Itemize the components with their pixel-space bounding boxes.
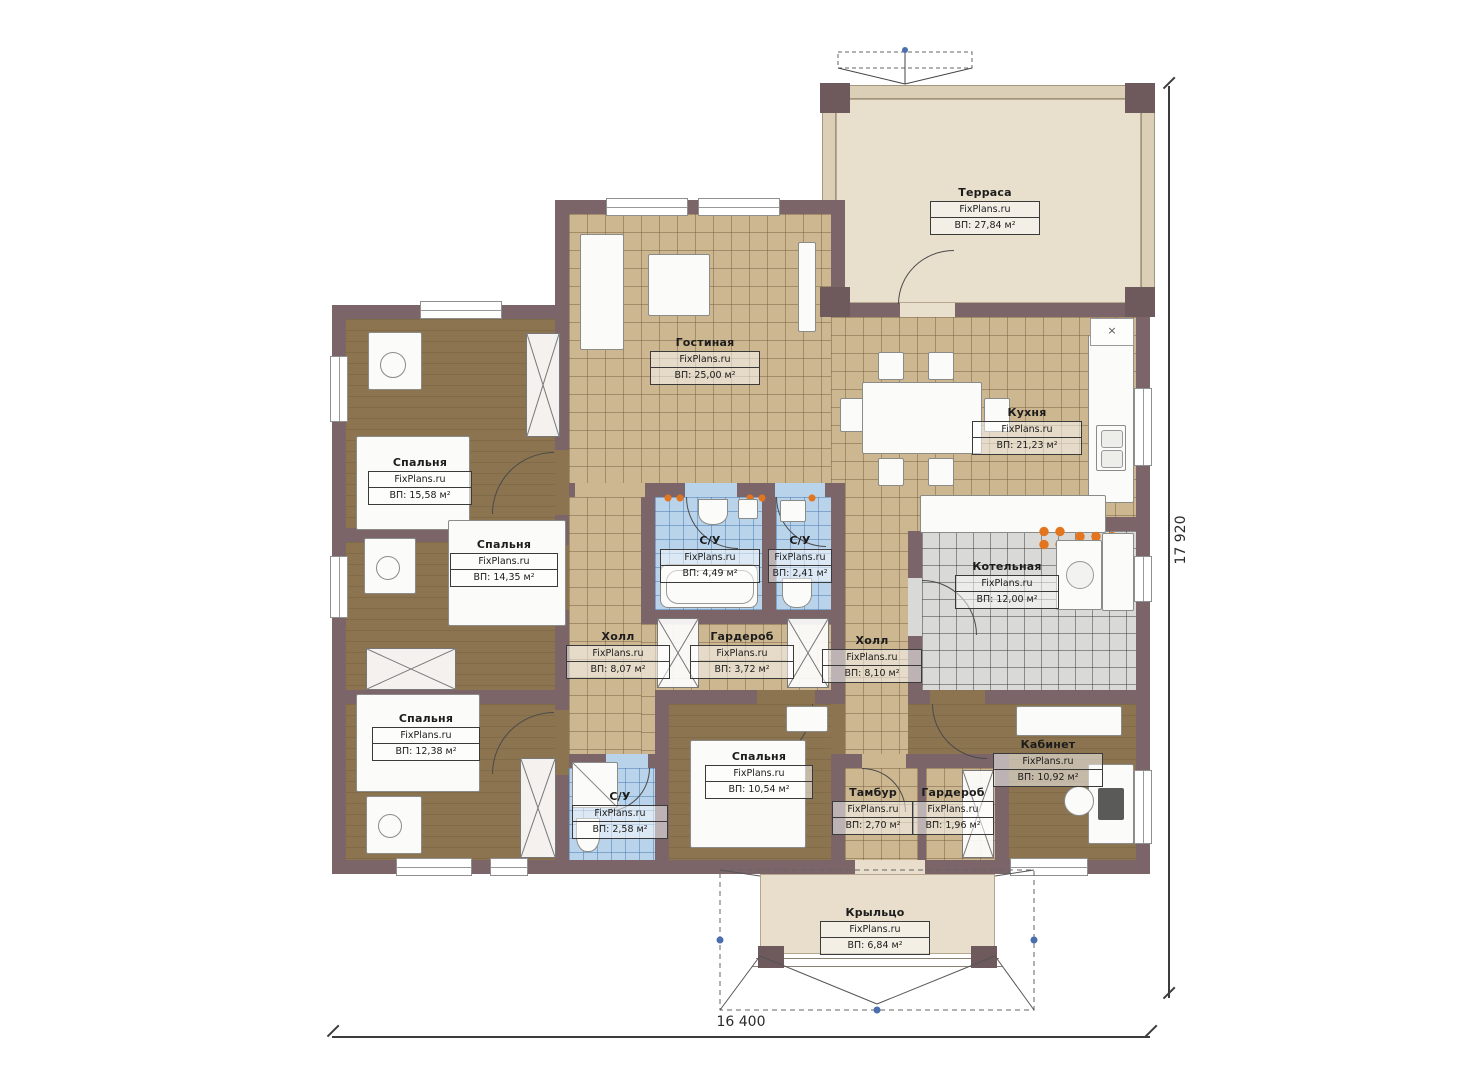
room-name: С/У [660,534,760,547]
room-area: ВП: 21,23 м² [973,437,1081,453]
room-label-wardrobe1: Гардероб FixPlans.ru ВП: 3,72 м² [690,630,794,679]
sink-bowl [1101,450,1123,468]
floor-plan: × [0,0,1474,1080]
room-label-office: Кабинет FixPlans.ru ВП: 10,92 м² [993,738,1103,787]
room-area: ВП: 12,38 м² [373,743,479,759]
room-info-box: FixPlans.ru ВП: 21,23 м² [972,421,1082,455]
room-label-tambour: Тамбур FixPlans.ru ВП: 2,70 м² [832,786,914,835]
window [396,858,472,876]
water-heater [1102,533,1134,611]
room-area: ВП: 2,58 м² [573,821,667,837]
room-brand: FixPlans.ru [994,754,1102,769]
room-name: Кухня [972,406,1082,419]
room-brand: FixPlans.ru [823,650,921,665]
boiler-dial [1066,561,1094,589]
room-brand: FixPlans.ru [691,646,793,661]
room-info-box: FixPlans.ru ВП: 3,72 м² [690,645,794,679]
room-info-box: FixPlans.ru ВП: 2,58 м² [572,805,668,839]
room-brand: FixPlans.ru [567,646,669,661]
door-gap-bath1 [685,483,737,497]
room-name: Гостиная [650,336,760,349]
room-name: Спальня [705,750,813,763]
room-label-terrace: Терраса FixPlans.ru ВП: 27,84 м² [930,186,1040,235]
room-label-kitchen: Кухня FixPlans.ru ВП: 21,23 м² [972,406,1082,455]
room-label-bath3: С/У FixPlans.ru ВП: 2,58 м² [572,790,668,839]
roof-valley-marker [824,44,988,88]
chair [878,458,904,486]
dining-table [862,382,982,454]
room-info-box: FixPlans.ru ВП: 27,84 м² [930,201,1040,235]
terrace-pillar [820,287,850,317]
dimension-line-bottom [332,1036,1150,1038]
washbasin-cabinet [786,706,828,732]
boiler-unit [1056,540,1102,610]
room-name: Холл [566,630,670,643]
door-gap-bedroom4 [757,690,815,704]
room-label-hall2: Холл FixPlans.ru ВП: 8,10 м² [822,634,922,683]
floor-hall1 [569,497,641,754]
wardrobe-cabinet [520,758,556,858]
room-info-box: FixPlans.ru ВП: 6,84 м² [820,921,930,955]
room-area: ВП: 15,58 м² [369,487,471,503]
room-name: Холл [822,634,922,647]
room-info-box: FixPlans.ru ВП: 12,38 м² [372,727,480,761]
wardrobe-cabinet [526,333,560,437]
kitchen-counter-bottom [920,495,1106,533]
room-brand: FixPlans.ru [451,554,557,569]
room-label-bedroom2: Спальня FixPlans.ru ВП: 14,35 м² [450,538,558,587]
room-name: Котельная [955,560,1059,573]
stool [378,814,402,838]
computer [1098,788,1124,820]
door-gap-bedroom1 [555,450,569,515]
room-label-bath2: С/У FixPlans.ru ВП: 2,41 м² [768,534,832,583]
window [1134,770,1152,844]
room-name: С/У [572,790,668,803]
window [330,356,348,422]
room-area: ВП: 12,00 м² [956,591,1058,607]
room-label-living: Гостиная FixPlans.ru ВП: 25,00 м² [650,336,760,385]
room-brand: FixPlans.ru [821,922,929,937]
room-area: ВП: 6,84 м² [821,937,929,953]
door-gap-office-hall2 [831,704,845,754]
room-label-bedroom3: Спальня FixPlans.ru ВП: 12,38 м² [372,712,480,761]
room-info-box: FixPlans.ru ВП: 4,49 м² [660,549,760,583]
room-area: ВП: 8,07 м² [567,661,669,677]
wardrobe-cabinet [366,648,456,690]
room-name: Кабинет [993,738,1103,751]
room-brand: FixPlans.ru [651,352,759,367]
room-brand: FixPlans.ru [956,576,1058,591]
office-chair [1064,786,1094,816]
sofa [580,234,624,350]
tv-stand [798,242,816,332]
room-info-box: FixPlans.ru ВП: 14,35 м² [450,553,558,587]
wall-step [555,200,569,319]
towel-radiator [806,493,818,503]
room-info-box: FixPlans.ru ВП: 25,00 м² [650,351,760,385]
room-name: Гардероб [912,786,994,799]
stool [376,556,400,580]
room-area: ВП: 27,84 м² [931,217,1039,233]
room-name: Тамбур [832,786,914,799]
room-brand: FixPlans.ru [373,728,479,743]
room-brand: FixPlans.ru [573,806,667,821]
door-gap-tambour [862,754,906,768]
room-name: С/У [768,534,832,547]
room-area: ВП: 10,54 м² [706,781,812,797]
room-info-box: FixPlans.ru ВП: 10,54 м² [705,765,813,799]
terrace-pillar [1125,287,1155,317]
toilet [698,499,728,525]
room-name: Гардероб [690,630,794,643]
room-info-box: FixPlans.ru ВП: 15,58 м² [368,471,472,505]
room-info-box: FixPlans.ru ВП: 8,10 м² [822,649,922,683]
towel-radiator [662,493,686,503]
room-name: Спальня [450,538,558,551]
dimension-width: 16 400 [332,1014,1150,1030]
room-label-bedroom1: Спальня FixPlans.ru ВП: 15,58 м² [368,456,472,505]
chair [878,352,904,380]
dimension-line-right [1168,86,1170,998]
window [606,198,688,216]
wall-rightwing-top [836,303,1150,317]
room-brand: FixPlans.ru [913,802,993,817]
window [420,301,502,319]
room-area: ВП: 8,10 м² [823,665,921,681]
coffee-table [648,254,710,316]
sink-bowl [1101,430,1123,448]
room-area: ВП: 2,41 м² [769,565,831,581]
room-brand: FixPlans.ru [369,472,471,487]
room-area: ВП: 4,49 м² [661,565,759,581]
room-label-bath1: С/У FixPlans.ru ВП: 4,49 м² [660,534,760,583]
room-brand: FixPlans.ru [833,802,913,817]
room-area: ВП: 2,70 м² [833,817,913,833]
terrace-railing-right [1141,85,1155,317]
washbasin [780,500,806,522]
room-label-hall1: Холл FixPlans.ru ВП: 8,07 м² [566,630,670,679]
room-info-box: FixPlans.ru ВП: 10,92 м² [993,753,1103,787]
room-name: Крыльцо [820,906,930,919]
window [698,198,780,216]
terrace-pillar [1125,83,1155,113]
dimension-height: 17 920 [1173,500,1189,580]
floor-hall2 [845,497,908,768]
room-info-box: FixPlans.ru ВП: 8,07 м² [566,645,670,679]
stool [380,352,406,378]
room-name: Спальня [368,456,472,469]
door-gap-office [930,690,985,704]
vent-mark: × [1090,318,1134,346]
room-name: Терраса [930,186,1040,199]
door-gap-bedroom3 [555,710,569,775]
chair [928,458,954,486]
office-sofa [1016,706,1122,736]
room-info-box: FixPlans.ru ВП: 2,41 м² [768,549,832,583]
washbasin [738,499,758,519]
room-area: ВП: 3,72 м² [691,661,793,677]
room-brand: FixPlans.ru [931,202,1039,217]
door-gap-boiler [908,578,922,636]
room-area: ВП: 14,35 м² [451,569,557,585]
window [1134,556,1152,602]
window [330,556,348,618]
room-name: Спальня [372,712,480,725]
room-info-box: FixPlans.ru ВП: 12,00 м² [955,575,1059,609]
kitchen-counter-right [1088,335,1134,503]
room-brand: FixPlans.ru [661,550,759,565]
opening-hall1-living [575,483,645,497]
window [1134,388,1152,466]
room-area: ВП: 25,00 м² [651,367,759,383]
room-brand: FixPlans.ru [769,550,831,565]
room-brand: FixPlans.ru [706,766,812,781]
wall-bath1-left [641,497,655,624]
window [490,858,528,876]
room-info-box: FixPlans.ru ВП: 1,96 м² [912,801,994,835]
room-label-bedroom4: Спальня FixPlans.ru ВП: 10,54 м² [705,750,813,799]
kitchen-sink [1096,425,1126,471]
door-gap-terrace [900,303,955,317]
room-brand: FixPlans.ru [973,422,1081,437]
room-area: ВП: 1,96 м² [913,817,993,833]
room-label-boiler: Котельная FixPlans.ru ВП: 12,00 м² [955,560,1059,609]
room-label-wardrobe2: Гардероб FixPlans.ru ВП: 1,96 м² [912,786,994,835]
room-label-porch: Крыльцо FixPlans.ru ВП: 6,84 м² [820,906,930,955]
room-info-box: FixPlans.ru ВП: 2,70 м² [832,801,914,835]
room-area: ВП: 10,92 м² [994,769,1102,785]
chair [928,352,954,380]
